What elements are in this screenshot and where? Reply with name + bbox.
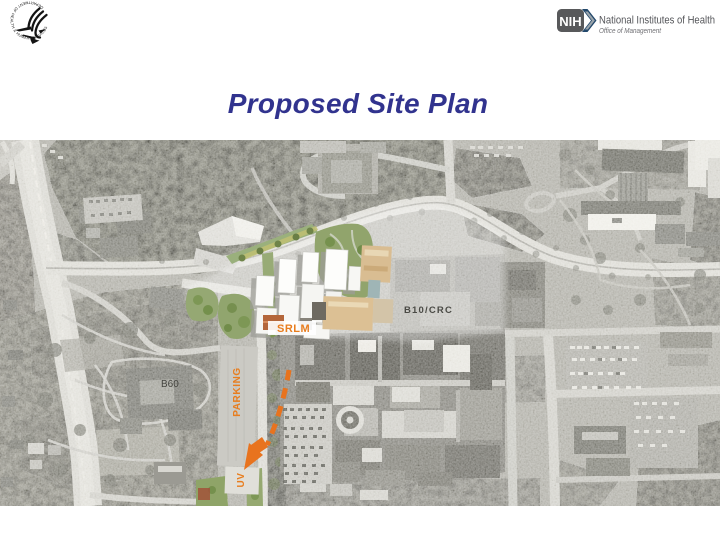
svg-text:B60: B60	[161, 379, 179, 390]
svg-text:Office of Management: Office of Management	[599, 28, 662, 35]
svg-text:National Institutes of Health: National Institutes of Health	[599, 15, 715, 27]
svg-text:NIH: NIH	[559, 14, 581, 29]
svg-text:B10/CRC: B10/CRC	[404, 305, 453, 316]
svg-text:UV: UV	[236, 472, 247, 487]
svg-text:SRLM: SRLM	[277, 323, 310, 335]
svg-text:PARKING: PARKING	[232, 367, 243, 417]
svg-text:DEPARTMENT OF HEALTH & HUMAN S: DEPARTMENT OF HEALTH & HUMAN SERVICES US…	[6, 1, 49, 40]
